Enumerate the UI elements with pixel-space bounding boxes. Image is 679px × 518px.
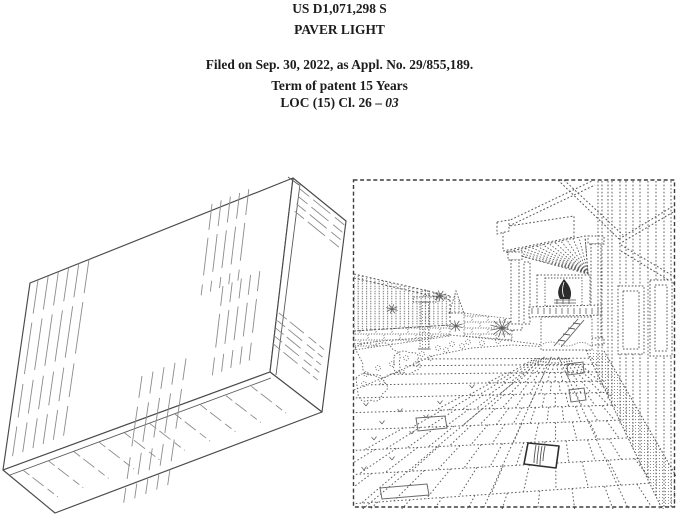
loc-prefix: LOC (15) Cl. 26 – (280, 95, 385, 110)
paver-light-environment-figure (352, 178, 676, 509)
hearth (541, 317, 592, 350)
filed-line: Filed on Sep. 30, 2022, as Appl. No. 29/… (0, 57, 679, 73)
house-base-band (586, 350, 676, 509)
paver-light-perspective-figure (0, 170, 348, 518)
outdoor-fireplace (529, 275, 601, 350)
patent-number: US D1,071,298 S (0, 1, 679, 17)
paver-light-installed (524, 443, 559, 468)
mantel (529, 305, 601, 317)
loc-classification-line: LOC (15) Cl. 26 – 03 (0, 95, 679, 111)
page-title: PAVER LIGHT (0, 22, 679, 38)
house-doors (618, 280, 672, 356)
privacy-fence (354, 274, 450, 331)
gate-gable (449, 291, 464, 313)
loc-class-value: 03 (385, 95, 398, 110)
term-line: Term of patent 15 Years (0, 78, 679, 94)
patent-page: { "page": { "background": "#ffffff", "te… (0, 0, 679, 518)
